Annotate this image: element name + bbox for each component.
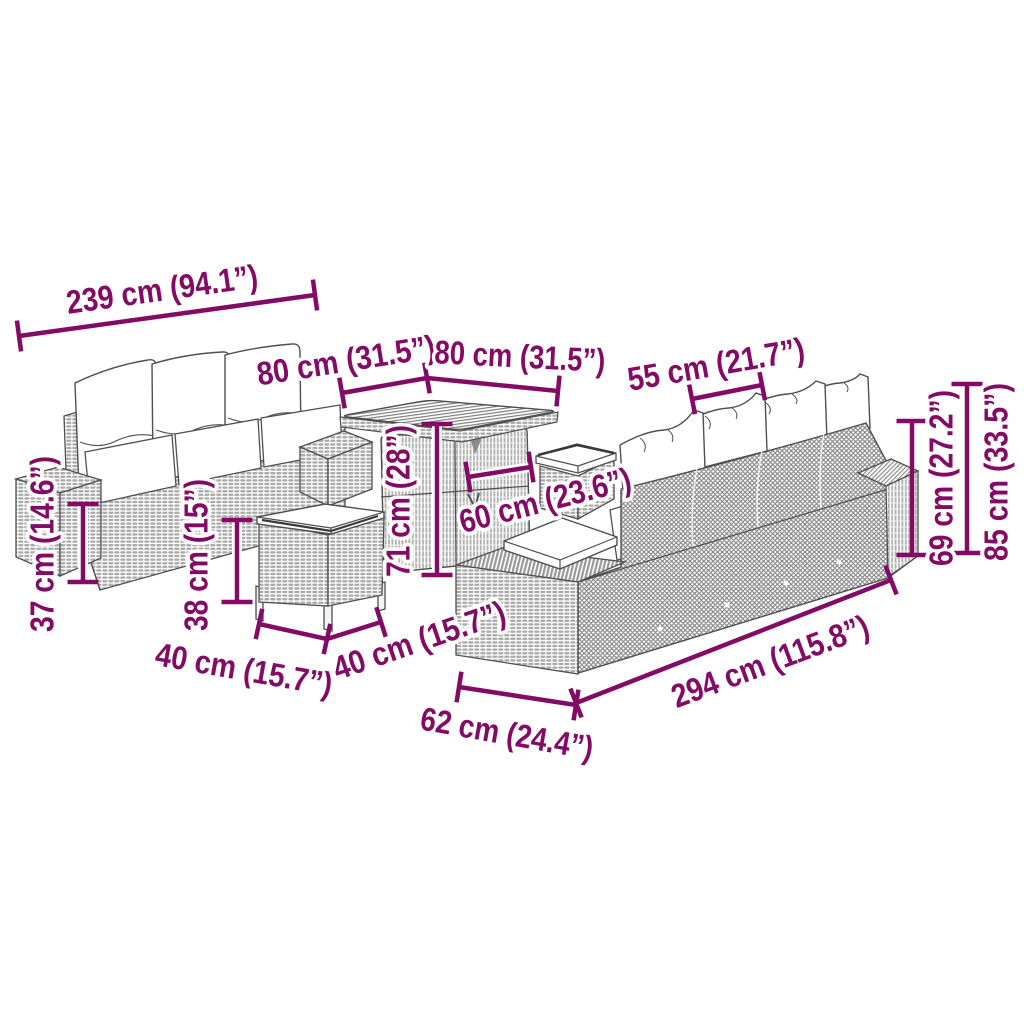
svg-text:71 cm (28”): 71 cm (28”) bbox=[380, 425, 417, 577]
svg-text:69 cm (27.2”): 69 cm (27.2”) bbox=[923, 390, 960, 566]
svg-text:38 cm (15”): 38 cm (15”) bbox=[178, 479, 215, 631]
svg-text:85 cm (33.5”): 85 cm (33.5”) bbox=[978, 383, 1015, 561]
svg-text:37 cm (14.6”): 37 cm (14.6”) bbox=[24, 456, 61, 632]
